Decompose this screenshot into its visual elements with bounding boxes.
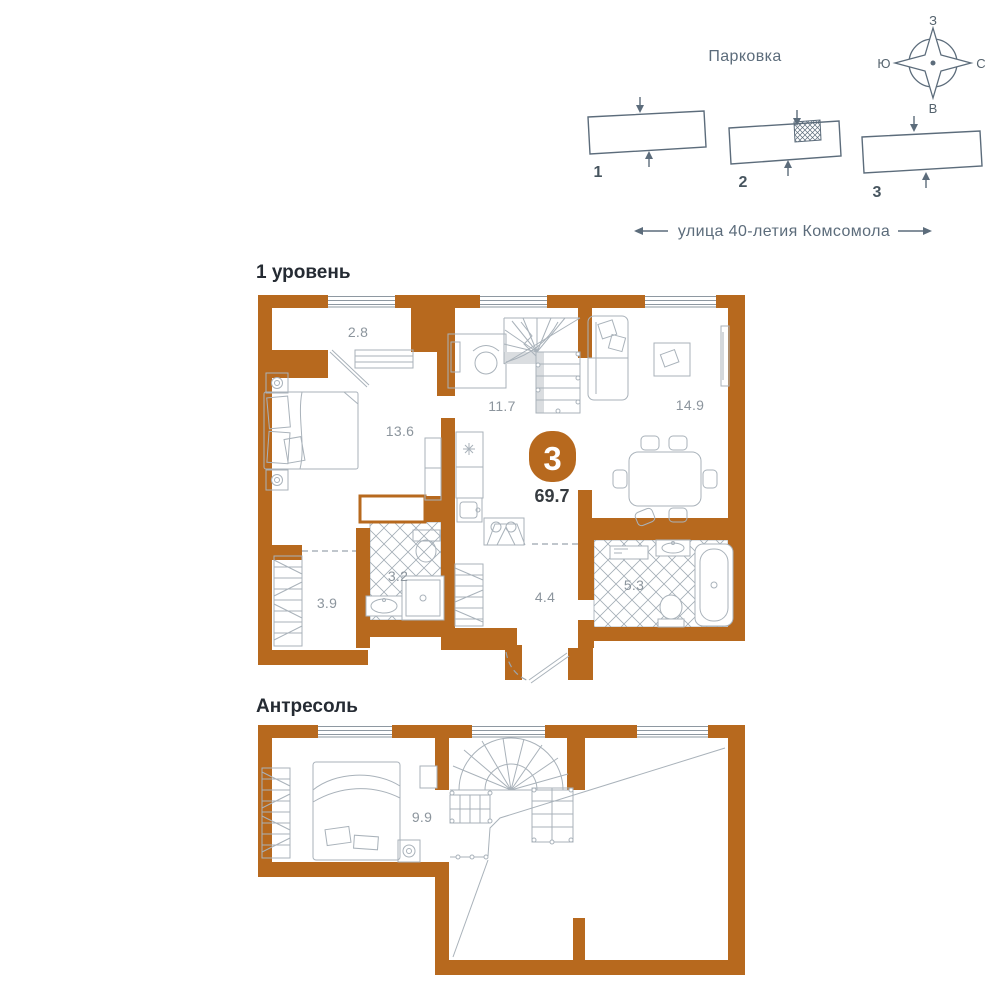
sofa-icon: [588, 316, 628, 400]
unit-badge: 3 69.7: [529, 431, 576, 506]
room-label-balcony: 2.8: [348, 324, 368, 340]
compass-north-label: С: [976, 56, 985, 71]
room-label-bathroom-small: 3.2: [388, 568, 408, 584]
parking-title: Парковка: [708, 48, 781, 65]
snowflake-icon: [463, 443, 475, 455]
room-label-mezzanine-bedroom: 9.9: [412, 809, 432, 825]
building-2: 2: [729, 110, 841, 191]
site-section: Парковка З Ю С В 1 2: [588, 13, 986, 240]
tv-panel-icon: [721, 326, 729, 386]
unit-rooms-count: 3: [543, 440, 561, 477]
washbasin-icon: [366, 596, 402, 616]
compass-east-label: В: [929, 101, 938, 116]
low-wall: [420, 766, 437, 788]
street-arrow-right-icon: [898, 227, 932, 235]
room-label-hallway: 4.4: [535, 589, 555, 605]
room-label-bathroom: 5.3: [624, 577, 644, 593]
level1-title: 1 уровень: [256, 262, 351, 283]
building-3-label: 3: [873, 184, 882, 201]
room-label-living: 14.9: [676, 397, 704, 413]
mezzanine-title: Антресоль: [256, 696, 358, 717]
unit-total-area: 69.7: [534, 486, 569, 506]
desk-icon: [448, 334, 506, 388]
building-1-label: 1: [594, 164, 603, 181]
void-edge-lines: [450, 748, 725, 957]
room-label-bedroom: 13.6: [386, 423, 414, 439]
building-1: 1: [588, 97, 706, 181]
staircase-mezzanine-icon: [450, 738, 573, 844]
balcony-window-and-door: [330, 350, 413, 387]
street-row: улица 40-летия Комсомола: [634, 223, 932, 240]
building-3: 3: [862, 116, 982, 201]
building-2-label: 2: [739, 174, 748, 191]
toilet-icon: [658, 595, 684, 627]
street-name-label: улица 40-летия Комсомола: [678, 223, 890, 240]
wardrobe-3-9-icon: [274, 556, 302, 646]
street-arrow-left-icon: [634, 227, 668, 235]
compass-west-label: З: [929, 13, 937, 28]
mezzanine-nightstand-icon: [398, 840, 420, 862]
washer-icon: [610, 546, 648, 559]
room-label-wardrobe: 3.9: [317, 595, 337, 611]
windows-mezzanine: [318, 727, 708, 738]
kitchen-sink-icon: [457, 498, 482, 522]
sink-icon: [656, 540, 690, 556]
plumbing-shaft: [360, 496, 425, 522]
room-label-hall: 11.7: [488, 398, 515, 414]
stove-icon: [484, 518, 525, 545]
level1-section: 1 уровень: [256, 262, 745, 683]
compass-rose-icon: З Ю С В: [877, 13, 985, 116]
hall-wardrobe-icon: [455, 564, 483, 626]
plan-canvas: Парковка З Ю С В 1 2: [0, 0, 1000, 1000]
shower-icon: [402, 576, 444, 620]
compass-south-label: Ю: [877, 56, 890, 71]
dining-table-icon: [613, 436, 717, 527]
coffee-table-icon: [654, 343, 690, 376]
bathtub-icon: [695, 544, 733, 626]
mezzanine-bed-icon: [313, 762, 400, 860]
floor-plan-page: Парковка З Ю С В 1 2: [0, 0, 1000, 1000]
mezzanine-section: Антресоль: [256, 696, 745, 975]
bed-icon: [264, 373, 358, 490]
windows-level1: [328, 297, 716, 308]
